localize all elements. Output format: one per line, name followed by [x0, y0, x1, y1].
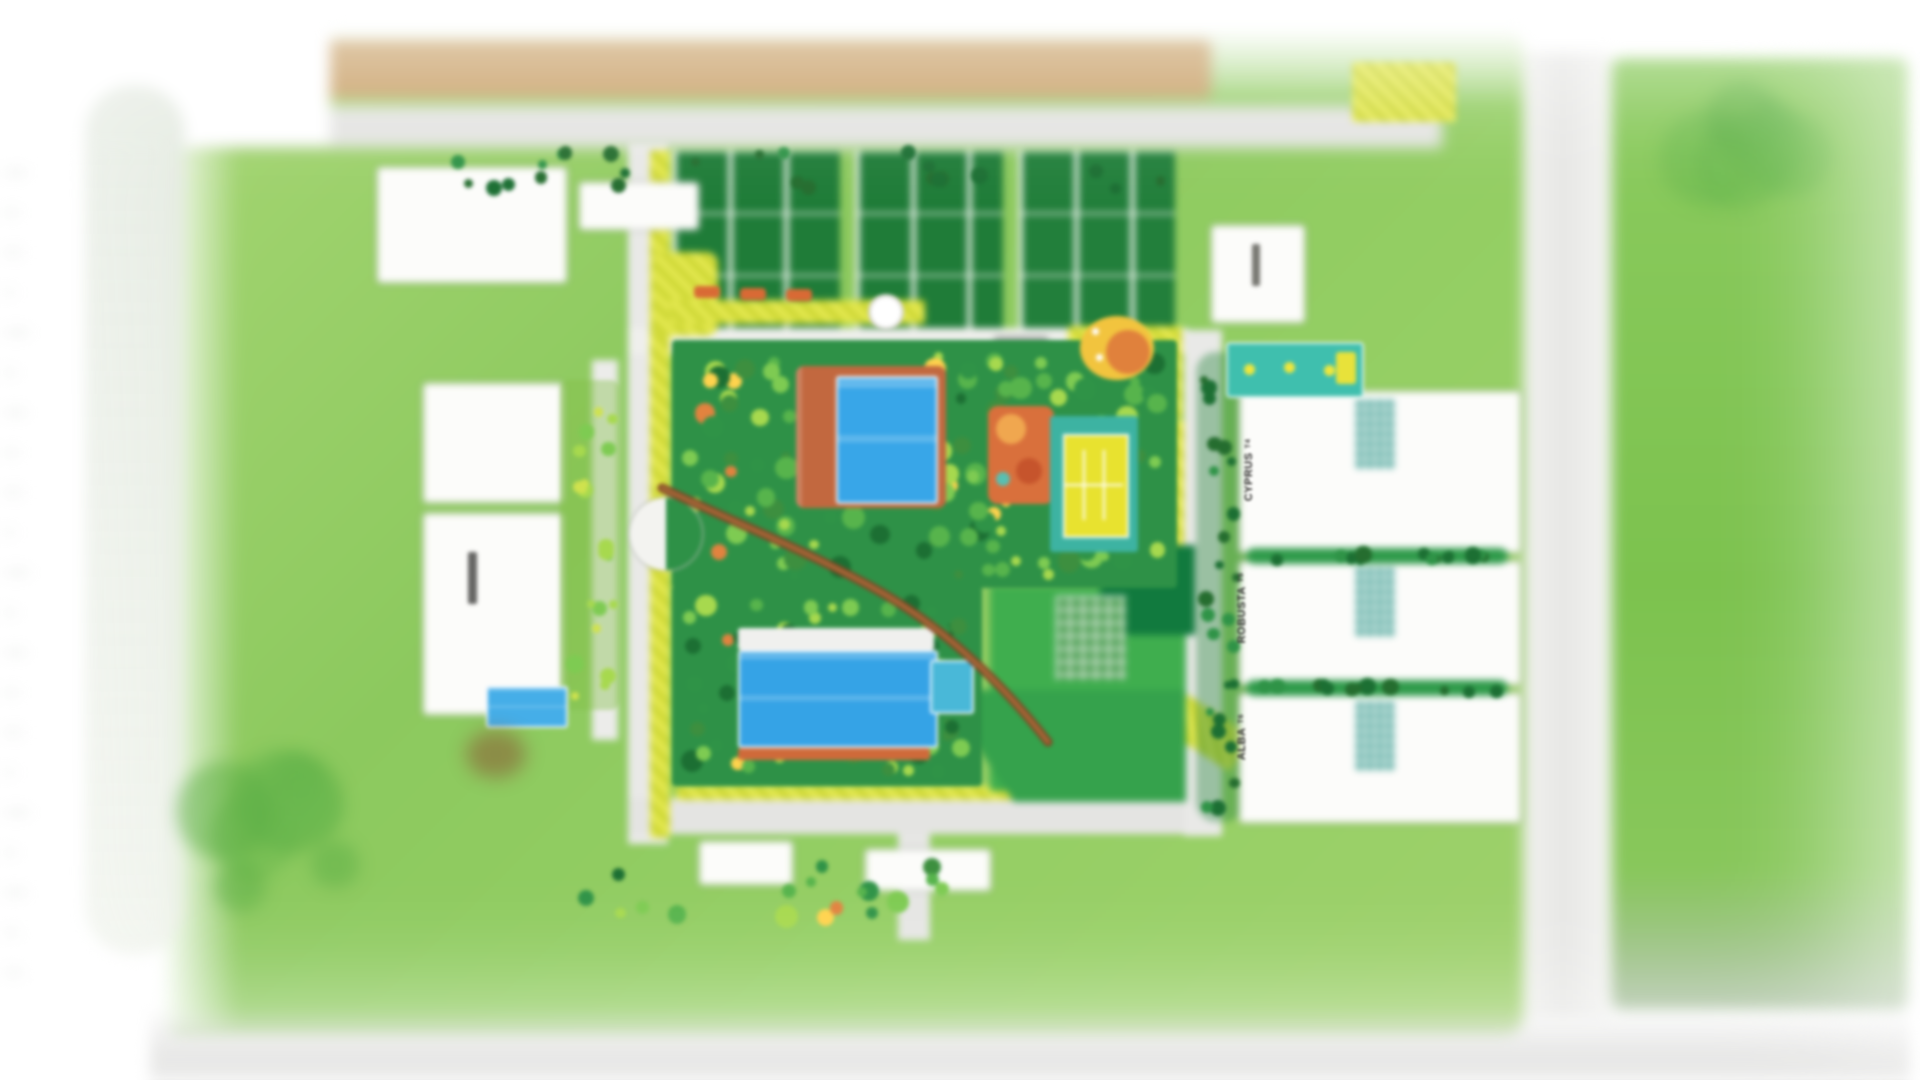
tower-label-cyprus: CYPRUST4 — [1243, 439, 1255, 502]
tower-label-robusta: ROBUSTAT5 — [1236, 573, 1248, 644]
tower-name: ALBA — [1236, 728, 1248, 761]
illegible-label-smudge-west-tower — [468, 552, 477, 604]
tower-name: ROBUSTA — [1236, 586, 1248, 643]
illegible-label-smudge-ne-tower — [1252, 244, 1260, 286]
tower-label-alba: ALBAT6 — [1236, 714, 1248, 760]
canopy-walk-path — [0, 0, 1920, 1080]
tower-code: T4 — [1243, 439, 1252, 449]
tower-code: T6 — [1236, 714, 1245, 724]
site-master-plan-image: CYPRUST4 ROBUSTAT5 ALBAT6 — [0, 0, 1920, 1080]
tower-name: CYPRUS — [1243, 452, 1255, 501]
tower-code: T5 — [1236, 573, 1245, 583]
